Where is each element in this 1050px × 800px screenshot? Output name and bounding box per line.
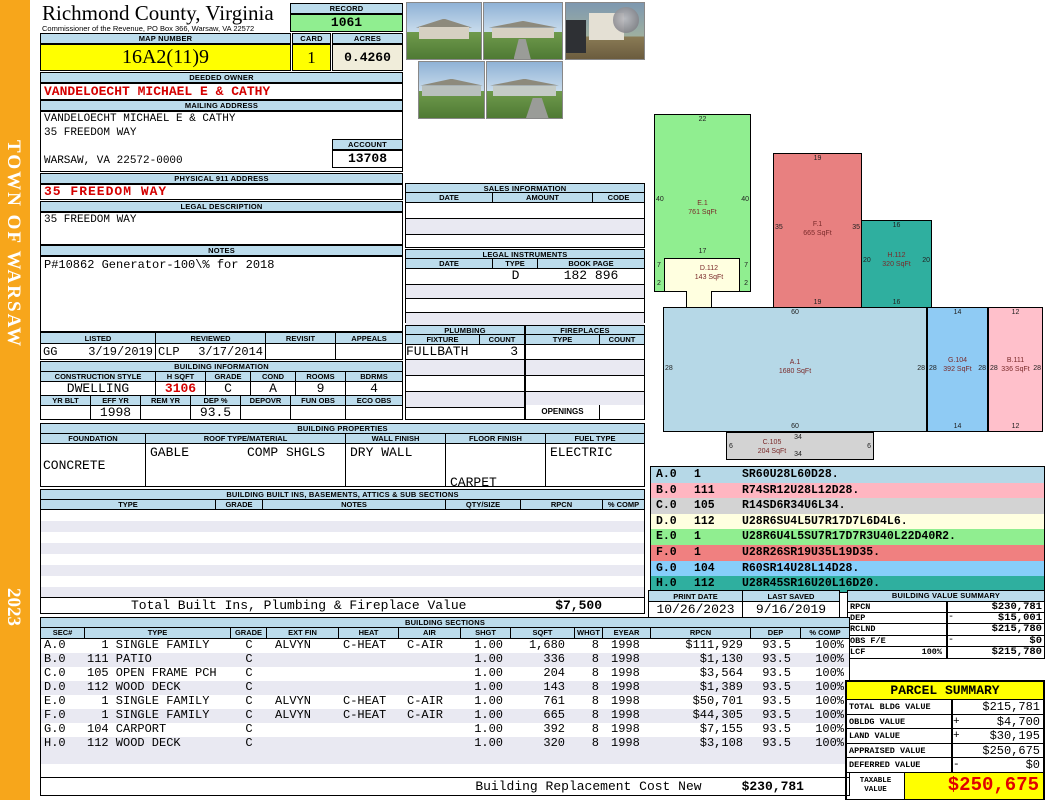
account-value: 13708 [332,150,403,168]
dim-label: 60 [791,423,799,430]
building-info-block: BUILDING INFORMATION CONSTRUCTION STYLE … [40,361,403,420]
parked-truck [566,20,586,54]
fixture-count: 3 [480,345,524,359]
empty-row [526,345,644,359]
building-section-cell: 1998 [603,681,651,695]
building-section-cell: $1,130 [651,653,751,667]
legend-row: G.0104R60SR14U28L14D28. [651,561,1044,577]
building-section-cell: ALVYN [267,639,339,653]
built-ins-block: BUILDING BUILT INS, BASEMENTS, ATTICS & … [40,489,645,598]
building-section-cell: 112 WOOD DECK [85,737,231,751]
acres-block: ACRES 0.4260 [332,33,403,71]
parcel-row: OBLDG VALUE+$4,700 [847,715,1043,730]
building-section-cell: 93.5 [751,695,801,709]
legal-instruments-block: LEGAL INSTRUMENTS DATE TYPE BOOK PAGE D … [405,249,645,323]
col-header: TYPE [41,500,216,509]
building-section-cell: A.0 [41,639,85,653]
empty-row [526,359,644,375]
building-section-cell: 8 [575,723,603,737]
building-section-cell [267,667,339,681]
sketch-legend: A.01SR60U28L60D28. B.0111R74SR12U28L12D2… [650,466,1045,593]
built-ins-total-label: Total Built Ins, Plumbing & Fireplace Va… [41,598,466,613]
built-ins-total-value: $7,500 [555,598,644,613]
sketch-shape-H: 16 20 20 16 H.112 320 SqFt [861,220,932,308]
shape-name: F.1 [774,220,861,229]
legend-sec: E.0 [651,529,694,545]
building-section-cell: 1.00 [461,639,511,653]
building-section-cell [339,737,399,751]
col-header: H SQFT [156,372,206,381]
depreciation-pct: 93.5 [191,406,241,419]
building-section-cell: C-AIR [399,695,461,709]
mailing-line: VANDELOECHT MICHAEL E & CATHY [44,113,399,127]
building-section-cell: 8 [575,737,603,751]
dep-override [241,406,291,419]
building-section-cell: 1998 [603,723,651,737]
building-info-title: BUILDING INFORMATION [40,361,403,372]
dim-label: 60 [791,309,799,316]
dim-label: 12 [1012,423,1020,430]
legend-sec: D.0 [651,514,694,530]
taxable-label: TAXABLE [847,777,904,786]
building-section-cell: $7,155 [651,723,751,737]
building-section-cell: C [231,737,267,751]
building-section-cell: 1.00 [461,723,511,737]
sketch-shape-F: 19 35 35 19 F.1 665 SqFt [773,153,862,308]
building-section-cell [267,681,339,695]
sketch-shape-B: 12 28 28 12 B.111 336 SqFt [988,307,1043,432]
legend-row: C.0105R14SD6R34U6L34. [651,498,1044,514]
house-body [492,28,554,38]
bvs-label: OBS F/E [850,636,886,646]
shape-sqft: 336 SqFt [989,365,1042,374]
building-section-cell: 100% [801,695,849,709]
legend-code: 105 [694,498,742,514]
mailing-address-label: MAILING ADDRESS [40,100,403,111]
building-section-cell: 8 [575,681,603,695]
building-section-cell: E.0 [41,695,85,709]
col-header: GRADE [216,500,263,509]
deeded-owner-block: DEEDED OWNER VANDELOECHT MICHAEL E & CAT… [40,72,403,100]
col-header: COUNT [600,335,644,344]
building-section-cell: 1.00 [461,695,511,709]
legend-trace: R14SD6R34U6L34. [742,498,846,514]
building-section-cell [267,737,339,751]
building-section-cell [339,667,399,681]
sketch-canvas: 22 40 40 17 7 7 2 2 E.1 761 SqFt D.112 1… [650,100,1045,464]
parcel-value: $4,700 [966,715,1043,729]
empty-row [41,565,644,576]
bvs-value: $215,780 [962,624,1044,634]
instrument-type: D [493,269,538,284]
building-section-cell: 1 SINGLE FAMILY [85,709,231,723]
reviewed-by: CLP [158,345,180,358]
col-header: ECO OBS [346,396,402,405]
building-section-cell: 143 [511,681,575,695]
sketch-shape-D-stem [686,291,712,308]
parcel-row: LAND VALUE+$30,195 [847,729,1043,744]
building-section-cell: H.0 [41,737,85,751]
instrument-book-page: 182 896 [538,269,644,284]
parcel-summary-block: PARCEL SUMMARY TOTAL BLDG VALUE$215,781 … [845,680,1045,800]
built-ins-title: BUILDING BUILT INS, BASEMENTS, ATTICS & … [40,489,645,500]
property-photo-1[interactable] [406,2,482,60]
building-section-cell [267,723,339,737]
building-section-cell: D.0 [41,681,85,695]
shape-sqft: 320 SqFt [862,260,931,269]
reviewed-date: 3/17/2014 [198,345,263,358]
listed-label: LISTED [41,333,156,343]
built-ins-total-row: Total Built Ins, Plumbing & Fireplace Va… [40,597,645,614]
building-section-cell: 1998 [603,737,651,751]
building-section-row: G.0104 CARPORTC1.0039281998$7,15593.5100… [41,723,849,737]
remodel-year [141,406,191,419]
building-section-cell [339,681,399,695]
building-section-cell: 93.5 [751,723,801,737]
legend-row: B.0111R74SR12U28L12D28. [651,483,1044,499]
dim-label: 7 [657,262,661,269]
empty-row [41,576,644,587]
plumbing-block: PLUMBING FIXTURE COUNT FULLBATH 3 [405,325,525,420]
parcel-label: OBLDG VALUE [847,715,953,729]
dim-label: 17 [699,248,707,255]
bvs-label: DEP [850,613,865,623]
col-header: ROOMS [296,372,346,381]
empty-row [41,751,849,764]
col-header: COUNT [480,335,524,344]
property-photo-3[interactable] [565,2,645,60]
empty-row [406,218,644,234]
sketch-shape-G: 14 28 28 14 G.104 392 SqFt [927,307,988,432]
bvs-label: RCLND [850,624,876,634]
appeals-value [336,344,402,359]
driveway [514,39,531,59]
building-sections-block: BUILDING SECTIONS SEC# TYPE GRADE EXT FI… [40,617,850,778]
building-section-cell: ALVYN [267,695,339,709]
listed-date: 3/19/2019 [88,345,153,358]
sketch-shape-A: 60 28 28 60 A.1 1680 SqFt [663,307,927,432]
building-section-row: A.0 1 SINGLE FAMILYCALVYNC-HEATC-AIR1.00… [41,639,849,653]
col-header: DEP % [191,396,241,405]
legend-trace: U28R26SR19U35L19D35. [742,545,880,561]
tax-year: 2023 [2,588,24,626]
acres-label: ACRES [332,33,403,44]
building-section-cell: 93.5 [751,667,801,681]
empty-row [406,375,524,391]
revisit-value [266,344,336,359]
roof-type-value: GABLE [150,445,189,485]
building-section-cell: 1.00 [461,681,511,695]
review-block: LISTED REVIEWED REVISIT APPEALS GG 3/19/… [40,332,403,360]
dim-label: 19 [814,299,822,306]
col-header: GRADE [231,628,267,638]
empty-row [41,543,644,554]
bvs-label: RPCN [850,602,870,612]
record-value: 1061 [290,14,403,32]
col-header: % COMP [801,628,849,638]
shape-name: B.111 [989,356,1042,365]
col-header: WHGT [575,628,603,638]
col-header: BDRMS [346,372,402,381]
building-section-cell: 761 [511,695,575,709]
empty-row [406,234,644,248]
col-header: EYEAR [603,628,651,638]
dim-label: 14 [954,309,962,316]
appeals-label: APPEALS [336,333,402,343]
bvs-row: RCLND $215,780 [848,624,1044,635]
bvs-value: $230,781 [962,602,1044,612]
legal-description-label: LEGAL DESCRIPTION [40,201,403,212]
parcel-label: APPRAISED VALUE [847,744,953,758]
building-section-cell [399,667,461,681]
dim-label: 22 [699,116,707,123]
col-header: FLOOR FINISH [446,434,546,443]
building-section-row: H.0112 WOOD DECKC1.0032081998$3,10893.51… [41,737,849,751]
building-section-cell: 1.00 [461,737,511,751]
col-header: COND [251,372,296,381]
plumbing-row: FULLBATH 3 [406,345,524,359]
parcel-op [953,744,966,758]
col-header: FUEL TYPE [546,434,644,443]
dim-label: 2 [657,280,661,287]
legend-code: 1 [694,529,742,545]
building-section-cell: 111 PATIO [85,653,231,667]
building-section-cell: $50,701 [651,695,751,709]
building-section-cell: F.0 [41,709,85,723]
bvs-op [948,624,962,634]
empty-row [406,298,644,312]
deeded-owner-label: DEEDED OWNER [40,72,403,83]
col-header: EXT FIN [267,628,339,638]
legend-code: 104 [694,561,742,577]
building-section-cell: 1998 [603,667,651,681]
building-section-cell [339,653,399,667]
year-built [41,406,91,419]
fixture-value: FULLBATH [406,345,480,359]
acres-value: 0.4260 [332,44,403,71]
shape-sqft: 204 SqFt [699,447,845,456]
bedrooms: 4 [346,382,402,395]
construction-style: DWELLING [41,382,156,395]
county-name: Richmond County, Virginia [42,2,290,24]
bvs-value: $0 [962,636,1044,646]
building-section-cell: 100% [801,667,849,681]
town-name: TOWN OF WARSAW [2,140,24,348]
building-section-cell [399,737,461,751]
empty-row [526,391,644,406]
building-section-cell: 104 CARPORT [85,723,231,737]
legend-row: F.01U28R26SR19U35L19D35. [651,545,1044,561]
dim-label: 19 [814,155,822,162]
parcel-op: - [953,758,966,772]
building-section-cell: 100% [801,681,849,695]
town-sidebar: TOWN OF WARSAW 2023 [0,0,30,800]
reviewed-label: REVIEWED [156,333,266,343]
parcel-row: TOTAL BLDG VALUE$215,781 [847,700,1043,715]
print-info-block: PRINT DATE LAST SAVED 10/26/2023 9/16/20… [648,590,840,620]
col-header: HEAT [339,628,399,638]
building-section-cell: C [231,695,267,709]
building-section-cell: C-HEAT [339,709,399,723]
shape-sqft: 1680 SqFt [664,367,926,376]
listed-by: GG [43,345,57,358]
col-header: EFF YR [91,396,141,405]
functional-obs [291,406,346,419]
building-section-cell: 1998 [603,709,651,723]
building-section-cell: 93.5 [751,709,801,723]
building-section-cell: 204 [511,667,575,681]
map-number-block: MAP NUMBER 16A2(11)9 [40,33,291,71]
building-section-cell: $3,564 [651,667,751,681]
bvs-op [948,602,962,612]
legend-sec: G.0 [651,561,694,577]
building-section-cell: C [231,667,267,681]
col-header: YR BLT [41,396,91,405]
dim-label: 16 [893,299,901,306]
shed-body [419,27,469,39]
house-roof [490,79,559,86]
empty-row [406,407,524,422]
building-section-cell: C [231,653,267,667]
empty-row [406,312,644,325]
taxable-value: $250,675 [905,773,1043,799]
parcel-label: TOTAL BLDG VALUE [847,700,953,714]
legend-code: 1 [694,545,742,561]
condition: A [251,382,296,395]
property-photo-5[interactable] [486,61,563,119]
parcel-summary-title: PARCEL SUMMARY [847,682,1043,700]
building-properties-block: BUILDING PROPERTIES FOUNDATION ROOF TYPE… [40,423,645,487]
fireplaces-block: FIREPLACES TYPE COUNT OPENINGS [525,325,645,420]
effective-year: 1998 [91,406,141,419]
dim-label: 6 [867,443,871,450]
dim-label: 12 [1012,309,1020,316]
legend-trace: SR60U28L60D28. [742,467,839,483]
empty-row [406,284,644,298]
account-label: ACCOUNT [332,139,403,150]
building-section-cell: C [231,639,267,653]
replacement-cost-label: Building Replacement Cost New [475,778,701,795]
bvs-value: $15,001 [962,613,1044,623]
col-header: AMOUNT [493,193,593,202]
building-section-cell: C-AIR [399,709,461,723]
legend-row: E.01U28R6U4L5SU7R17D7R3U40L22D40R2. [651,529,1044,545]
fireplaces-title: FIREPLACES [525,325,645,335]
building-section-cell: C [231,709,267,723]
building-section-cell: 665 [511,709,575,723]
col-header: TYPE [493,259,538,268]
sales-info-block: SALES INFORMATION DATE AMOUNT CODE [405,183,645,248]
record-block: RECORD 1061 [290,3,403,32]
legend-code: 1 [694,467,742,483]
col-header: DATE [406,259,493,268]
dim-label: 16 [893,222,901,229]
parcel-row: DEFERRED VALUE-$0 [847,758,1043,773]
col-header: CONSTRUCTION STYLE [41,372,156,381]
building-section-cell: 1.00 [461,653,511,667]
property-photo-4[interactable] [418,61,485,119]
legend-row: A.01SR60U28L60D28. [651,467,1044,483]
building-section-cell: 100% [801,639,849,653]
bvs-row: LCF100% $215,780 [848,647,1044,658]
instrument-date [406,269,493,284]
col-header: ROOF TYPE/MATERIAL [146,434,346,443]
building-section-cell: 112 WOOD DECK [85,681,231,695]
building-section-cell: C [231,723,267,737]
building-section-row: C.0105 OPEN FRAME PCHC1.0020481998$3,564… [41,667,849,681]
taxable-label: VALUE [847,786,904,795]
col-header: DEPOVR [241,396,291,405]
building-section-row: E.0 1 SINGLE FAMILYCALVYNC-HEATC-AIR1.00… [41,695,849,709]
physical-address-block: PHYSICAL 911 ADDRESS 35 FREEDOM WAY [40,173,403,200]
legend-sec: C.0 [651,498,694,514]
building-section-cell: 105 OPEN FRAME PCH [85,667,231,681]
dim-label: 7 [744,262,748,269]
shape-name: A.1 [664,358,926,367]
building-section-cell: 392 [511,723,575,737]
taxable-row: TAXABLE VALUE $250,675 [847,773,1043,799]
building-section-cell: 320 [511,737,575,751]
legend-code: 112 [694,514,742,530]
account-block: ACCOUNT 13708 [332,139,403,168]
county-header: Richmond County, Virginia Commissioner o… [42,2,290,33]
bvs-pct: 100% [922,647,942,658]
empty-row [406,359,524,375]
house-roof [420,79,482,86]
building-section-cell: $1,389 [651,681,751,695]
foundation-value: CONCRETE [41,444,146,486]
bvs-value: $215,780 [962,647,1044,658]
building-section-cell: 1.00 [461,709,511,723]
building-section-cell: ALVYN [267,709,339,723]
legend-sec: B.0 [651,483,694,499]
parcel-row: APPRAISED VALUE$250,675 [847,744,1043,759]
building-section-cell: C-HEAT [339,695,399,709]
property-photo-2[interactable] [483,2,563,60]
legal-instrument-row: D 182 896 [406,269,644,284]
building-section-row: B.0111 PATIOC1.0033681998$1,13093.5100% [41,653,849,667]
map-number-value: 16A2(11)9 [40,44,291,71]
legend-trace: U28R6SU4L5U7R17D7L6D4L6. [742,514,908,530]
dim-label: 14 [954,423,962,430]
bvs-label: LCF [850,647,865,658]
shape-name: G.104 [928,356,987,365]
building-section-cell: C-HEAT [339,639,399,653]
col-header: RPCN [521,500,603,509]
col-header: WALL FINISH [346,434,446,443]
parcel-label: LAND VALUE [847,729,953,743]
col-header: SEC# [41,628,85,638]
last-saved-label: LAST SAVED [743,591,839,601]
building-section-cell: 8 [575,639,603,653]
bvs-op: - [948,613,962,623]
building-section-cell: 1,680 [511,639,575,653]
building-section-cell: C-AIR [399,639,461,653]
building-section-cell: 1998 [603,653,651,667]
house-roof [489,21,558,28]
building-section-cell: 1 SINGLE FAMILY [85,639,231,653]
heated-sqft: 3106 [156,382,206,395]
legend-sec: A.0 [651,467,694,483]
building-section-cell [399,723,461,737]
building-section-cell: 8 [575,667,603,681]
building-section-cell: 100% [801,737,849,751]
building-section-cell: 8 [575,653,603,667]
physical-address-value: 35 FREEDOM WAY [40,184,403,200]
property-record-card: TOWN OF WARSAW 2023 Richmond County, Vir… [0,0,1050,800]
dim-label: 2 [744,280,748,287]
col-header: SHGT [461,628,511,638]
